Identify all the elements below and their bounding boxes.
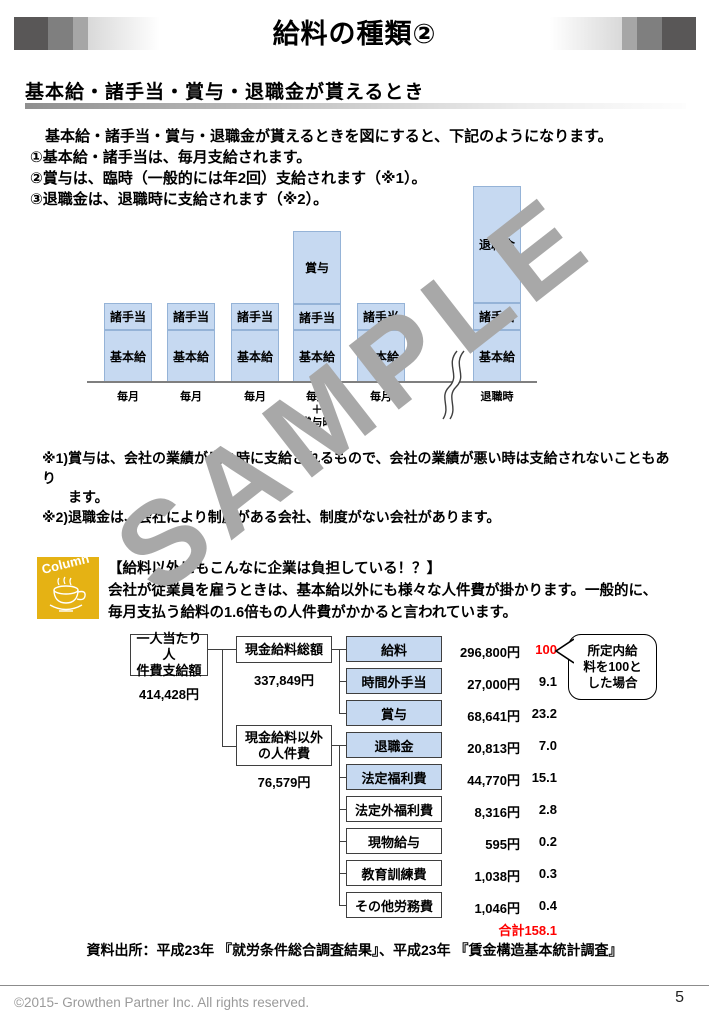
page-number: 5 [675, 989, 684, 1007]
footnote-1-cont: ます。 [68, 488, 682, 508]
bar6-base-segment: 基本給 [473, 330, 521, 382]
x-label-monthly: 毎月 [104, 391, 152, 404]
intro-line: ②賞与は、臨時（一般的には年2回）支給されます（※1）。 [30, 168, 680, 189]
tree-connector [339, 745, 340, 906]
intro-line: ③退職金は、退職時に支給されます（※2）。 [30, 189, 680, 210]
column-heading: 【給料以外にもこんなに企業は負担している！？】 [108, 558, 688, 580]
segment-label: 基本給 [479, 348, 515, 365]
segment-label: 基本給 [299, 348, 335, 365]
tree-node-label: その他労務費 [355, 896, 433, 915]
tree-connector [222, 649, 223, 747]
tree-connector [339, 713, 346, 714]
bubble-tail-icon [552, 638, 574, 664]
bar4-allowance-segment: 諸手当 [293, 304, 341, 330]
column-line: 毎月支払う給料の1.6倍もの人件費がかかると言われています。 [108, 602, 688, 624]
bar5-base-segment: 基本給 [357, 330, 405, 382]
segment-label: 基本給 [173, 348, 209, 365]
bar2-allowance-segment: 諸手当 [167, 303, 215, 330]
x-label-monthly: 毎月 [167, 391, 215, 404]
bar1-base-segment: 基本給 [104, 330, 152, 382]
tree-node-label: 退職金 [374, 736, 413, 755]
segment-label: 諸手当 [363, 308, 399, 325]
footer-divider [0, 985, 709, 986]
copyright-text: ©2015- Growthen Partner Inc. All rights … [14, 995, 309, 1010]
tree-branch-label-line: の人件費 [258, 746, 310, 762]
tree-connector [339, 681, 346, 682]
x-label-line: 賞与時 [293, 417, 341, 430]
page-title: 給料の種類② [0, 12, 709, 51]
tree-node-label: 時間外手当 [361, 672, 426, 691]
bar5-allowance-segment: 諸手当 [357, 303, 405, 330]
tree-total: 合計158.1 [440, 920, 557, 939]
segment-label: 基本給 [237, 348, 273, 365]
segment-label: 基本給 [363, 348, 399, 365]
segment-label: 退職金 [479, 236, 515, 253]
tree-connector [339, 905, 346, 906]
tree-root-label-line: 一人当たり人 [131, 631, 207, 663]
x-label-monthly-plus-bonus: 毎月 ＋ 賞与時 [293, 391, 341, 430]
segment-label: 諸手当 [299, 309, 335, 326]
bar6-retirement-segment: 退職金 [473, 186, 521, 303]
segment-label: 諸手当 [173, 308, 209, 325]
data-source-note: 資料出所：平成23年 『就労条件総合調査結果』、平成23年 『賃金構造基本統計調… [0, 940, 709, 960]
bar1-allowance-segment: 諸手当 [104, 303, 152, 330]
column-line: 会社が従業員を雇うときは、基本給以外にも様々な人件費が掛かります。一般的に、 [108, 580, 688, 602]
bubble-line: した場合 [587, 675, 637, 691]
bar6-allowance-segment: 諸手当 [473, 303, 521, 330]
tree-branch-cash-value: 337,849円 [236, 670, 332, 689]
axis-break-icon [431, 349, 467, 421]
column-coffee-icon: Column [37, 557, 99, 619]
tree-root-label-line: 件費支給額 [136, 663, 201, 679]
intro-line: ①基本給・諸手当は、毎月支給されます。 [30, 147, 680, 168]
index-note-bubble: 所定内給 料を100と した場合 [568, 634, 657, 700]
tree-index: 0.4 [503, 898, 557, 913]
tree-index: 15.1 [503, 770, 557, 785]
x-label-monthly: 毎月 [357, 391, 405, 404]
tree-connector [339, 841, 346, 842]
tree-node-label: 現物給与 [368, 832, 420, 851]
tree-index: 2.8 [503, 802, 557, 817]
tree-index: 0.2 [503, 834, 557, 849]
tree-branch-noncash: 現金給料以外 の人件費 [236, 725, 332, 766]
segment-label: 諸手当 [479, 308, 515, 325]
bar2-base-segment: 基本給 [167, 330, 215, 382]
footnote-1: ※1)賞与は、会社の業績が良い時に支給されるもので、会社の業績が悪い時は支給され… [42, 449, 682, 488]
x-label-line: ＋ [293, 404, 341, 417]
bar3-base-segment: 基本給 [231, 330, 279, 382]
tree-branch-noncash-value: 76,579円 [236, 772, 332, 791]
section-underline [25, 103, 686, 109]
tree-branch-label-line: 現金給料以外 [245, 730, 323, 746]
x-label-monthly: 毎月 [231, 391, 279, 404]
tree-branch-label: 現金給料総額 [245, 642, 323, 658]
bar3-allowance-segment: 諸手当 [231, 303, 279, 330]
bubble-line: 料を100と [583, 659, 641, 675]
segment-label: 賞与 [305, 259, 329, 276]
tree-index: 9.1 [503, 674, 557, 689]
tree-node-label: 給料 [381, 640, 407, 659]
tree-root-value: 414,428円 [122, 684, 216, 703]
x-label-line: 毎月 [293, 391, 341, 404]
tree-connector [339, 777, 346, 778]
tree-connector [339, 809, 346, 810]
tree-node-label: 賞与 [381, 704, 407, 723]
bubble-line: 所定内給 [587, 643, 637, 659]
tree-connector [222, 746, 236, 747]
column-text: 【給料以外にもこんなに企業は負担している！？】 会社が従業員を雇うときは、基本給… [108, 558, 688, 624]
tree-index: 23.2 [503, 706, 557, 721]
intro-line: 基本給・諸手当・賞与・退職金が貰えるときを図にすると、下記のようになります。 [30, 126, 680, 147]
tree-branch-cash-total: 現金給料総額 [236, 636, 332, 663]
tree-connector [339, 873, 346, 874]
segment-label: 諸手当 [237, 308, 273, 325]
x-axis-line [87, 381, 537, 383]
bar4-bonus-segment: 賞与 [293, 231, 341, 304]
intro-paragraph: 基本給・諸手当・賞与・退職金が貰えるときを図にすると、下記のようになります。 ①… [30, 126, 680, 210]
document-page: 給料の種類② 基本給・諸手当・賞与・退職金が貰えるとき 基本給・諸手当・賞与・退… [0, 0, 709, 1024]
x-label-retirement: 退職時 [473, 391, 521, 404]
bar4-base-segment: 基本給 [293, 330, 341, 382]
footnote-2: ※2)退職金は、会社により制度がある会社、制度がない会社があります。 [42, 508, 682, 528]
tree-index: 7.0 [503, 738, 557, 753]
tree-index: 100 [503, 642, 557, 657]
tree-node-label: 法定外福利費 [355, 800, 433, 819]
tree-node-label: 法定福利費 [361, 768, 426, 787]
footnotes: ※1)賞与は、会社の業績が良い時に支給されるもので、会社の業績が悪い時は支給され… [42, 449, 682, 527]
segment-label: 基本給 [110, 348, 146, 365]
tree-node-label: 教育訓練費 [361, 864, 426, 883]
section-heading: 基本給・諸手当・賞与・退職金が貰えるとき [25, 77, 424, 104]
tree-root-node: 一人当たり人 件費支給額 [130, 634, 208, 676]
segment-label: 諸手当 [110, 308, 146, 325]
tree-index: 0.3 [503, 866, 557, 881]
